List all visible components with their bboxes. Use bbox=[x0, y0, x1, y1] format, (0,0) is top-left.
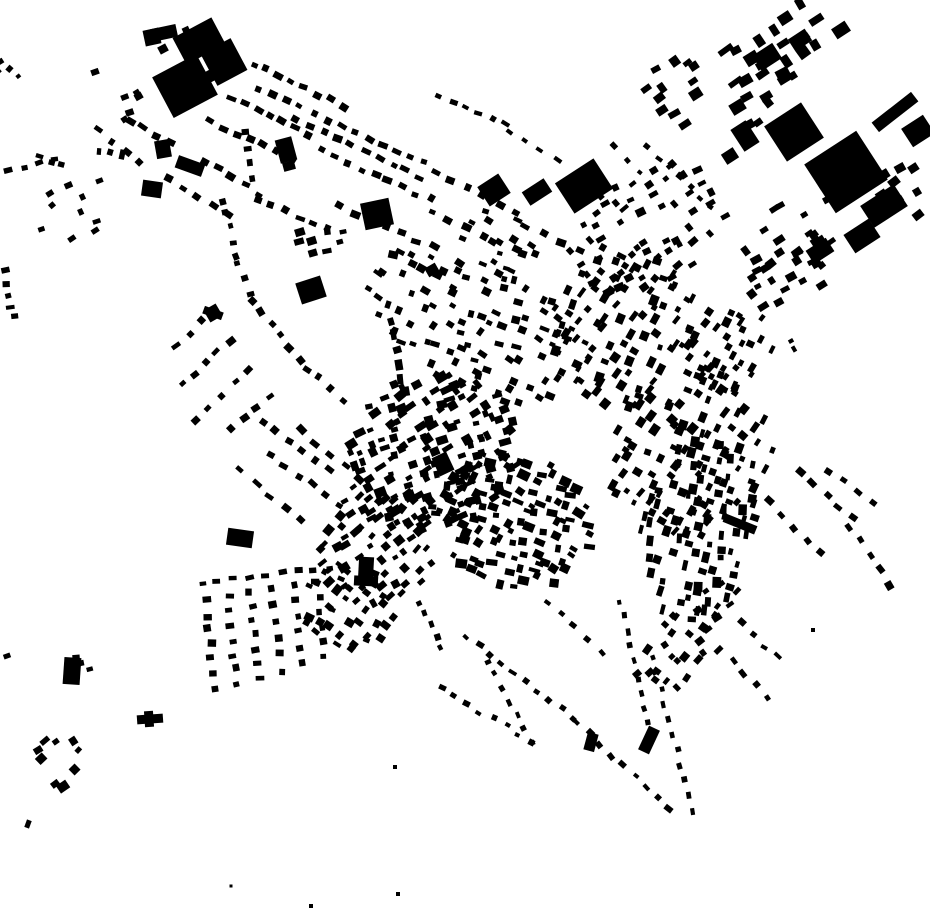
building-footprint bbox=[294, 627, 302, 633]
building-footprint bbox=[660, 640, 669, 649]
building-footprint bbox=[631, 499, 637, 506]
building-footprint bbox=[505, 384, 515, 394]
building-footprint bbox=[750, 630, 758, 638]
building-footprint bbox=[643, 448, 651, 456]
building-footprint bbox=[566, 247, 575, 256]
building-footprint bbox=[179, 380, 187, 387]
building-footprint bbox=[502, 499, 512, 507]
building-footprint bbox=[311, 456, 320, 466]
building-footprint bbox=[226, 95, 237, 103]
building-footprint bbox=[513, 355, 523, 365]
building-footprint bbox=[776, 38, 790, 50]
building-footprint bbox=[726, 486, 734, 495]
building-footprint bbox=[312, 91, 322, 101]
building-footprint bbox=[735, 465, 742, 472]
building-footprint bbox=[476, 570, 487, 579]
building-footprint bbox=[108, 138, 116, 146]
building-footprint bbox=[336, 239, 344, 246]
building-footprint bbox=[416, 600, 423, 607]
building-footprint bbox=[506, 128, 514, 135]
building-footprint bbox=[785, 271, 798, 283]
building-footprint bbox=[399, 164, 410, 173]
building-footprint bbox=[477, 312, 487, 321]
building-footprint bbox=[725, 474, 730, 481]
building-footprint bbox=[693, 389, 703, 399]
building-footprint bbox=[421, 304, 429, 313]
building-footprint bbox=[794, 0, 806, 10]
building-footprint bbox=[278, 461, 288, 470]
building-footprint bbox=[90, 68, 100, 76]
building-footprint bbox=[632, 466, 643, 477]
building-footprint bbox=[857, 535, 865, 543]
building-footprint bbox=[660, 578, 666, 585]
building-footprint bbox=[266, 392, 275, 400]
building-footprint bbox=[458, 235, 466, 242]
building-footprint bbox=[397, 374, 404, 385]
building-footprint bbox=[549, 578, 559, 588]
building-footprint bbox=[780, 285, 790, 294]
building-footprint bbox=[642, 247, 652, 256]
building-footprint bbox=[353, 427, 367, 439]
building-footprint bbox=[408, 290, 415, 297]
building-footprint bbox=[684, 223, 693, 233]
building-footprint bbox=[319, 637, 327, 645]
building-footprint bbox=[268, 320, 276, 329]
building-footprint bbox=[703, 350, 711, 358]
building-footprint bbox=[758, 314, 765, 322]
building-footprint bbox=[646, 535, 654, 546]
building-footprint bbox=[637, 310, 647, 320]
building-footprint bbox=[624, 355, 635, 367]
building-footprint bbox=[505, 722, 512, 728]
building-footprint bbox=[563, 284, 573, 295]
building-footprint bbox=[429, 241, 441, 252]
building-footprint bbox=[740, 245, 751, 256]
building-footprint bbox=[686, 792, 692, 800]
building-footprint bbox=[704, 306, 714, 317]
building-footprint bbox=[725, 583, 735, 592]
building-footprint bbox=[611, 199, 620, 208]
building-footprint bbox=[347, 449, 354, 457]
building-footprint bbox=[672, 683, 681, 692]
building-footprint bbox=[611, 183, 619, 192]
building-footprint bbox=[544, 599, 552, 606]
building-footprint bbox=[208, 639, 217, 647]
building-footprint bbox=[705, 482, 713, 491]
building-footprint bbox=[633, 773, 640, 779]
building-footprint bbox=[469, 408, 481, 419]
building-footprint bbox=[482, 366, 492, 375]
building-footprint bbox=[376, 555, 387, 566]
building-footprint bbox=[446, 320, 455, 329]
building-footprint bbox=[251, 646, 260, 654]
building-footprint bbox=[509, 234, 520, 244]
building-footprint bbox=[599, 397, 612, 410]
building-footprint bbox=[393, 534, 406, 547]
building-footprint bbox=[157, 43, 169, 54]
building-footprint bbox=[34, 159, 43, 166]
building-footprint bbox=[487, 502, 499, 512]
building-footprint bbox=[569, 545, 578, 553]
building-footprint bbox=[541, 376, 549, 385]
building-footprint bbox=[806, 477, 817, 488]
building-footprint bbox=[640, 83, 652, 94]
building-footprint bbox=[596, 267, 605, 276]
building-footprint bbox=[411, 379, 423, 390]
building-footprint bbox=[844, 523, 853, 532]
building-footprint bbox=[760, 644, 768, 651]
building-footprint bbox=[555, 544, 561, 552]
building-footprint bbox=[887, 175, 901, 188]
building-footprint bbox=[363, 494, 373, 504]
building-footprint bbox=[429, 321, 438, 331]
building-footprint bbox=[559, 704, 567, 712]
building-footprint bbox=[78, 660, 84, 667]
building-footprint bbox=[351, 128, 359, 136]
building-footprint bbox=[824, 491, 833, 500]
building-footprint bbox=[798, 277, 807, 285]
building-footprint bbox=[624, 157, 631, 164]
building-footprint bbox=[598, 649, 606, 657]
building-footprint bbox=[644, 391, 657, 404]
building-footprint bbox=[713, 645, 723, 655]
building-footprint bbox=[0, 58, 4, 66]
building-footprint bbox=[434, 633, 442, 641]
building-footprint bbox=[629, 346, 639, 355]
building-footprint bbox=[779, 54, 793, 69]
building-footprint bbox=[212, 579, 220, 584]
building-footprint bbox=[676, 762, 683, 770]
building-footprint bbox=[485, 478, 495, 483]
building-footprint bbox=[230, 885, 233, 888]
building-footprint bbox=[620, 339, 629, 348]
building-footprint bbox=[715, 441, 724, 449]
building-footprint bbox=[486, 319, 493, 326]
building-footprint bbox=[611, 367, 622, 379]
building-footprint bbox=[530, 508, 538, 516]
building-footprint bbox=[685, 594, 691, 601]
building-footprint bbox=[218, 124, 229, 133]
building-footprint bbox=[345, 509, 356, 519]
building-footprint bbox=[294, 227, 306, 237]
building-footprint bbox=[696, 475, 704, 484]
building-footprint bbox=[506, 474, 513, 484]
building-footprint bbox=[326, 94, 336, 104]
building-footprint bbox=[477, 349, 488, 359]
building-footprint bbox=[773, 297, 784, 307]
building-footprint bbox=[764, 694, 771, 701]
building-footprint bbox=[644, 180, 654, 190]
building-footprint bbox=[233, 681, 240, 687]
building-footprint bbox=[615, 313, 626, 325]
building-footprint bbox=[678, 118, 692, 130]
building-footprint bbox=[259, 418, 268, 427]
building-footprint bbox=[682, 560, 689, 571]
building-footprint bbox=[674, 306, 681, 313]
building-footprint bbox=[179, 185, 188, 193]
building-footprint bbox=[769, 446, 776, 454]
building-footprint bbox=[248, 617, 255, 623]
building-footprint bbox=[77, 208, 84, 216]
building-footprint bbox=[650, 274, 660, 284]
building-footprint bbox=[623, 273, 634, 283]
building-footprint bbox=[320, 654, 326, 659]
building-footprint bbox=[693, 521, 703, 531]
building-footprint bbox=[517, 575, 530, 586]
building-footprint bbox=[527, 738, 535, 746]
building-footprint bbox=[811, 628, 815, 632]
building-footprint bbox=[446, 348, 454, 356]
building-footprint bbox=[240, 99, 250, 108]
building-footprint bbox=[57, 161, 65, 168]
building-footprint bbox=[777, 511, 785, 520]
building-footprint bbox=[311, 109, 319, 117]
building-footprint bbox=[491, 309, 501, 317]
building-footprint bbox=[375, 311, 383, 318]
building-footprint bbox=[683, 386, 692, 394]
building-footprint bbox=[72, 654, 80, 660]
building-footprint bbox=[261, 573, 269, 578]
building-footprint bbox=[757, 301, 770, 312]
building-footprint bbox=[295, 215, 305, 222]
building-footprint bbox=[325, 450, 335, 460]
building-footprint bbox=[295, 355, 305, 365]
building-footprints-layer bbox=[0, 0, 930, 924]
building-footprint bbox=[728, 548, 734, 555]
building-footprint bbox=[816, 280, 828, 291]
building-footprint bbox=[477, 174, 510, 207]
building-footprint bbox=[533, 688, 540, 695]
building-footprint bbox=[658, 202, 666, 210]
building-footprint bbox=[495, 551, 505, 559]
building-footprint bbox=[738, 669, 748, 679]
building-footprint bbox=[290, 114, 300, 123]
building-footprint bbox=[377, 141, 388, 150]
building-footprint bbox=[476, 327, 485, 337]
building-footprint bbox=[473, 421, 480, 427]
building-footprint bbox=[364, 134, 375, 144]
building-footprint bbox=[457, 318, 466, 326]
building-footprint bbox=[52, 738, 60, 746]
building-footprint bbox=[358, 167, 366, 174]
building-footprint bbox=[535, 146, 543, 153]
building-footprint bbox=[721, 316, 732, 328]
figure-ground-map bbox=[0, 0, 930, 924]
building-footprint bbox=[361, 605, 370, 614]
building-footprint bbox=[696, 195, 703, 202]
building-footprint bbox=[449, 692, 457, 700]
building-footprint bbox=[450, 551, 457, 558]
building-footprint bbox=[739, 455, 746, 462]
building-footprint bbox=[420, 158, 427, 165]
building-footprint bbox=[547, 461, 555, 469]
building-footprint bbox=[497, 660, 505, 668]
building-footprint bbox=[411, 191, 419, 198]
building-footprint bbox=[639, 330, 650, 342]
building-footprint bbox=[553, 156, 562, 164]
building-footprint bbox=[747, 362, 757, 373]
building-footprint bbox=[209, 670, 217, 676]
building-footprint bbox=[391, 147, 402, 156]
building-footprint bbox=[202, 358, 211, 367]
building-footprint bbox=[617, 600, 622, 605]
building-footprint bbox=[664, 246, 673, 255]
building-footprint bbox=[349, 483, 357, 490]
building-footprint bbox=[415, 565, 425, 575]
building-footprint bbox=[202, 596, 211, 603]
building-footprint bbox=[338, 102, 349, 113]
building-footprint bbox=[211, 685, 219, 692]
building-footprint bbox=[387, 403, 397, 413]
building-footprint bbox=[314, 372, 322, 381]
building-footprint bbox=[600, 199, 610, 208]
building-footprint bbox=[390, 162, 398, 169]
building-footprint bbox=[306, 236, 317, 246]
building-footprint bbox=[249, 603, 258, 610]
building-footprint bbox=[325, 384, 334, 393]
building-footprint bbox=[600, 358, 609, 366]
building-footprint bbox=[445, 176, 456, 186]
building-footprint bbox=[277, 331, 285, 339]
building-footprint bbox=[372, 619, 381, 629]
building-footprint bbox=[324, 464, 335, 474]
building-footprint bbox=[462, 274, 471, 281]
building-footprint bbox=[643, 142, 651, 150]
building-footprint bbox=[558, 610, 565, 617]
building-footprint bbox=[387, 317, 395, 326]
building-footprint bbox=[612, 453, 621, 463]
building-footprint bbox=[69, 764, 81, 776]
building-footprint bbox=[208, 200, 219, 210]
building-footprint bbox=[389, 433, 399, 443]
building-footprint bbox=[257, 139, 268, 149]
building-footprint bbox=[491, 714, 498, 721]
building-footprint bbox=[750, 513, 760, 522]
building-footprint bbox=[651, 675, 660, 684]
building-footprint bbox=[539, 325, 550, 332]
building-footprint bbox=[690, 808, 695, 815]
building-footprint bbox=[833, 503, 843, 512]
building-footprint bbox=[592, 209, 601, 218]
building-footprint bbox=[654, 793, 662, 801]
building-footprint bbox=[774, 247, 785, 258]
building-footprint bbox=[533, 537, 545, 547]
building-footprint bbox=[316, 609, 322, 616]
building-footprint bbox=[390, 451, 398, 459]
building-footprint bbox=[580, 221, 587, 228]
building-footprint bbox=[687, 236, 698, 247]
building-footprint bbox=[605, 341, 614, 351]
building-footprint bbox=[368, 532, 376, 540]
building-footprint bbox=[628, 310, 638, 321]
building-footprint bbox=[685, 189, 694, 198]
building-footprint bbox=[417, 577, 426, 585]
building-footprint bbox=[335, 630, 345, 640]
building-footprint bbox=[738, 504, 747, 515]
building-footprint bbox=[550, 530, 562, 541]
building-footprint bbox=[617, 218, 625, 226]
building-footprint bbox=[613, 424, 623, 435]
building-footprint bbox=[691, 548, 700, 557]
building-footprint bbox=[647, 508, 656, 517]
building-footprint bbox=[554, 497, 563, 506]
building-footprint bbox=[705, 395, 712, 404]
building-footprint bbox=[381, 175, 393, 185]
building-footprint bbox=[647, 470, 656, 478]
building-footprint bbox=[407, 435, 417, 443]
building-footprint bbox=[618, 468, 628, 479]
building-footprint bbox=[667, 108, 681, 120]
building-footprint bbox=[399, 269, 407, 277]
building-footprint bbox=[649, 313, 660, 326]
building-footprint bbox=[330, 152, 339, 160]
building-footprint bbox=[692, 165, 704, 175]
building-footprint bbox=[574, 316, 582, 325]
building-footprint bbox=[229, 639, 237, 645]
building-footprint bbox=[713, 423, 721, 433]
building-footprint bbox=[575, 246, 585, 255]
building-footprint bbox=[727, 309, 735, 317]
building-footprint bbox=[294, 567, 302, 573]
building-footprint bbox=[738, 339, 745, 347]
building-footprint bbox=[788, 338, 794, 344]
building-footprint bbox=[264, 492, 274, 501]
building-footprint bbox=[367, 427, 374, 433]
building-footprint bbox=[355, 491, 365, 501]
building-footprint bbox=[302, 365, 312, 374]
building-footprint bbox=[398, 182, 408, 191]
building-footprint bbox=[373, 293, 383, 302]
building-footprint bbox=[552, 516, 561, 527]
building-footprint bbox=[701, 551, 711, 563]
building-footprint bbox=[653, 91, 666, 104]
building-footprint bbox=[457, 452, 466, 459]
building-footprint bbox=[791, 246, 804, 259]
building-footprint bbox=[457, 329, 465, 335]
building-footprint bbox=[638, 274, 646, 281]
building-footprint bbox=[650, 328, 661, 339]
building-footprint bbox=[729, 571, 738, 579]
building-footprint bbox=[427, 193, 436, 202]
building-footprint bbox=[707, 542, 712, 548]
building-footprint bbox=[564, 309, 573, 318]
building-footprint bbox=[367, 446, 378, 458]
building-footprint bbox=[520, 222, 530, 231]
building-footprint bbox=[344, 437, 358, 450]
building-footprint bbox=[474, 110, 483, 116]
building-footprint bbox=[204, 404, 212, 412]
building-footprint bbox=[431, 511, 441, 517]
building-footprint bbox=[478, 503, 486, 511]
building-footprint bbox=[243, 365, 253, 376]
building-footprint bbox=[339, 229, 347, 235]
building-footprint bbox=[565, 517, 575, 523]
building-footprint bbox=[702, 588, 710, 595]
building-footprint bbox=[334, 510, 346, 522]
building-footprint bbox=[716, 457, 722, 464]
building-footprint bbox=[498, 684, 506, 692]
building-footprint bbox=[677, 599, 685, 607]
building-footprint bbox=[718, 531, 724, 540]
building-footprint bbox=[3, 166, 13, 174]
building-footprint bbox=[337, 575, 345, 582]
building-footprint bbox=[750, 254, 763, 266]
building-footprint bbox=[521, 284, 529, 293]
building-footprint bbox=[646, 517, 653, 528]
building-footprint bbox=[94, 125, 104, 134]
building-footprint bbox=[467, 441, 474, 449]
building-footprint bbox=[685, 629, 694, 638]
